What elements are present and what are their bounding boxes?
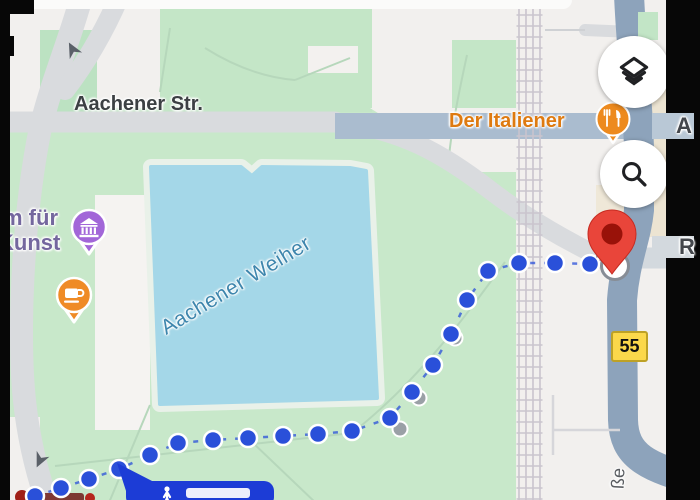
- route-dot: [309, 425, 327, 443]
- route-dot: [442, 325, 460, 343]
- route-dot: [479, 262, 497, 280]
- route-info-callout[interactable]: [126, 481, 274, 500]
- top-left-black-notch: [0, 0, 34, 14]
- route-dot: [424, 356, 442, 374]
- railway-tracks: [517, 0, 543, 500]
- route-dot: [204, 431, 222, 449]
- route-dot: [458, 291, 476, 309]
- street-label-partial-r: R: [679, 234, 695, 260]
- walking-person-icon: [160, 486, 174, 500]
- route-dot: [581, 255, 599, 273]
- poi-label-der-italiener[interactable]: Der Italiener: [449, 110, 565, 133]
- route-dot: [169, 434, 187, 452]
- route-dot: [274, 427, 292, 445]
- route-dot: [510, 254, 528, 272]
- route-dot: [343, 422, 361, 440]
- museum-poi-pin[interactable]: [69, 208, 109, 263]
- layers-icon: [613, 51, 655, 93]
- street-label-aachener-str: Aachener Str.: [74, 93, 203, 116]
- street-label-partial-sse: ße: [607, 467, 629, 489]
- left-black-border: [0, 0, 10, 500]
- route-dot: [52, 479, 70, 497]
- left-black-notch: [0, 36, 14, 56]
- route-dot: [80, 470, 98, 488]
- search-button[interactable]: [600, 140, 668, 208]
- route-dot: [381, 409, 399, 427]
- cafe-poi-pin[interactable]: [54, 276, 94, 331]
- route-dot: [403, 383, 421, 401]
- route-dot: [546, 254, 564, 272]
- layers-button[interactable]: [598, 36, 670, 108]
- route-dot: [141, 446, 159, 464]
- route-dot: [26, 487, 44, 500]
- lake: [151, 167, 377, 404]
- route-number-badge: 55: [611, 331, 648, 362]
- callout-text-cutoff: [186, 488, 250, 498]
- top-card-edge: [10, 0, 572, 9]
- search-icon: [615, 155, 653, 193]
- map-screen: Aachener Str. Der Italiener m für Kunst …: [0, 0, 700, 500]
- route-dot: [239, 429, 257, 447]
- street-label-partial-a: A: [676, 113, 692, 139]
